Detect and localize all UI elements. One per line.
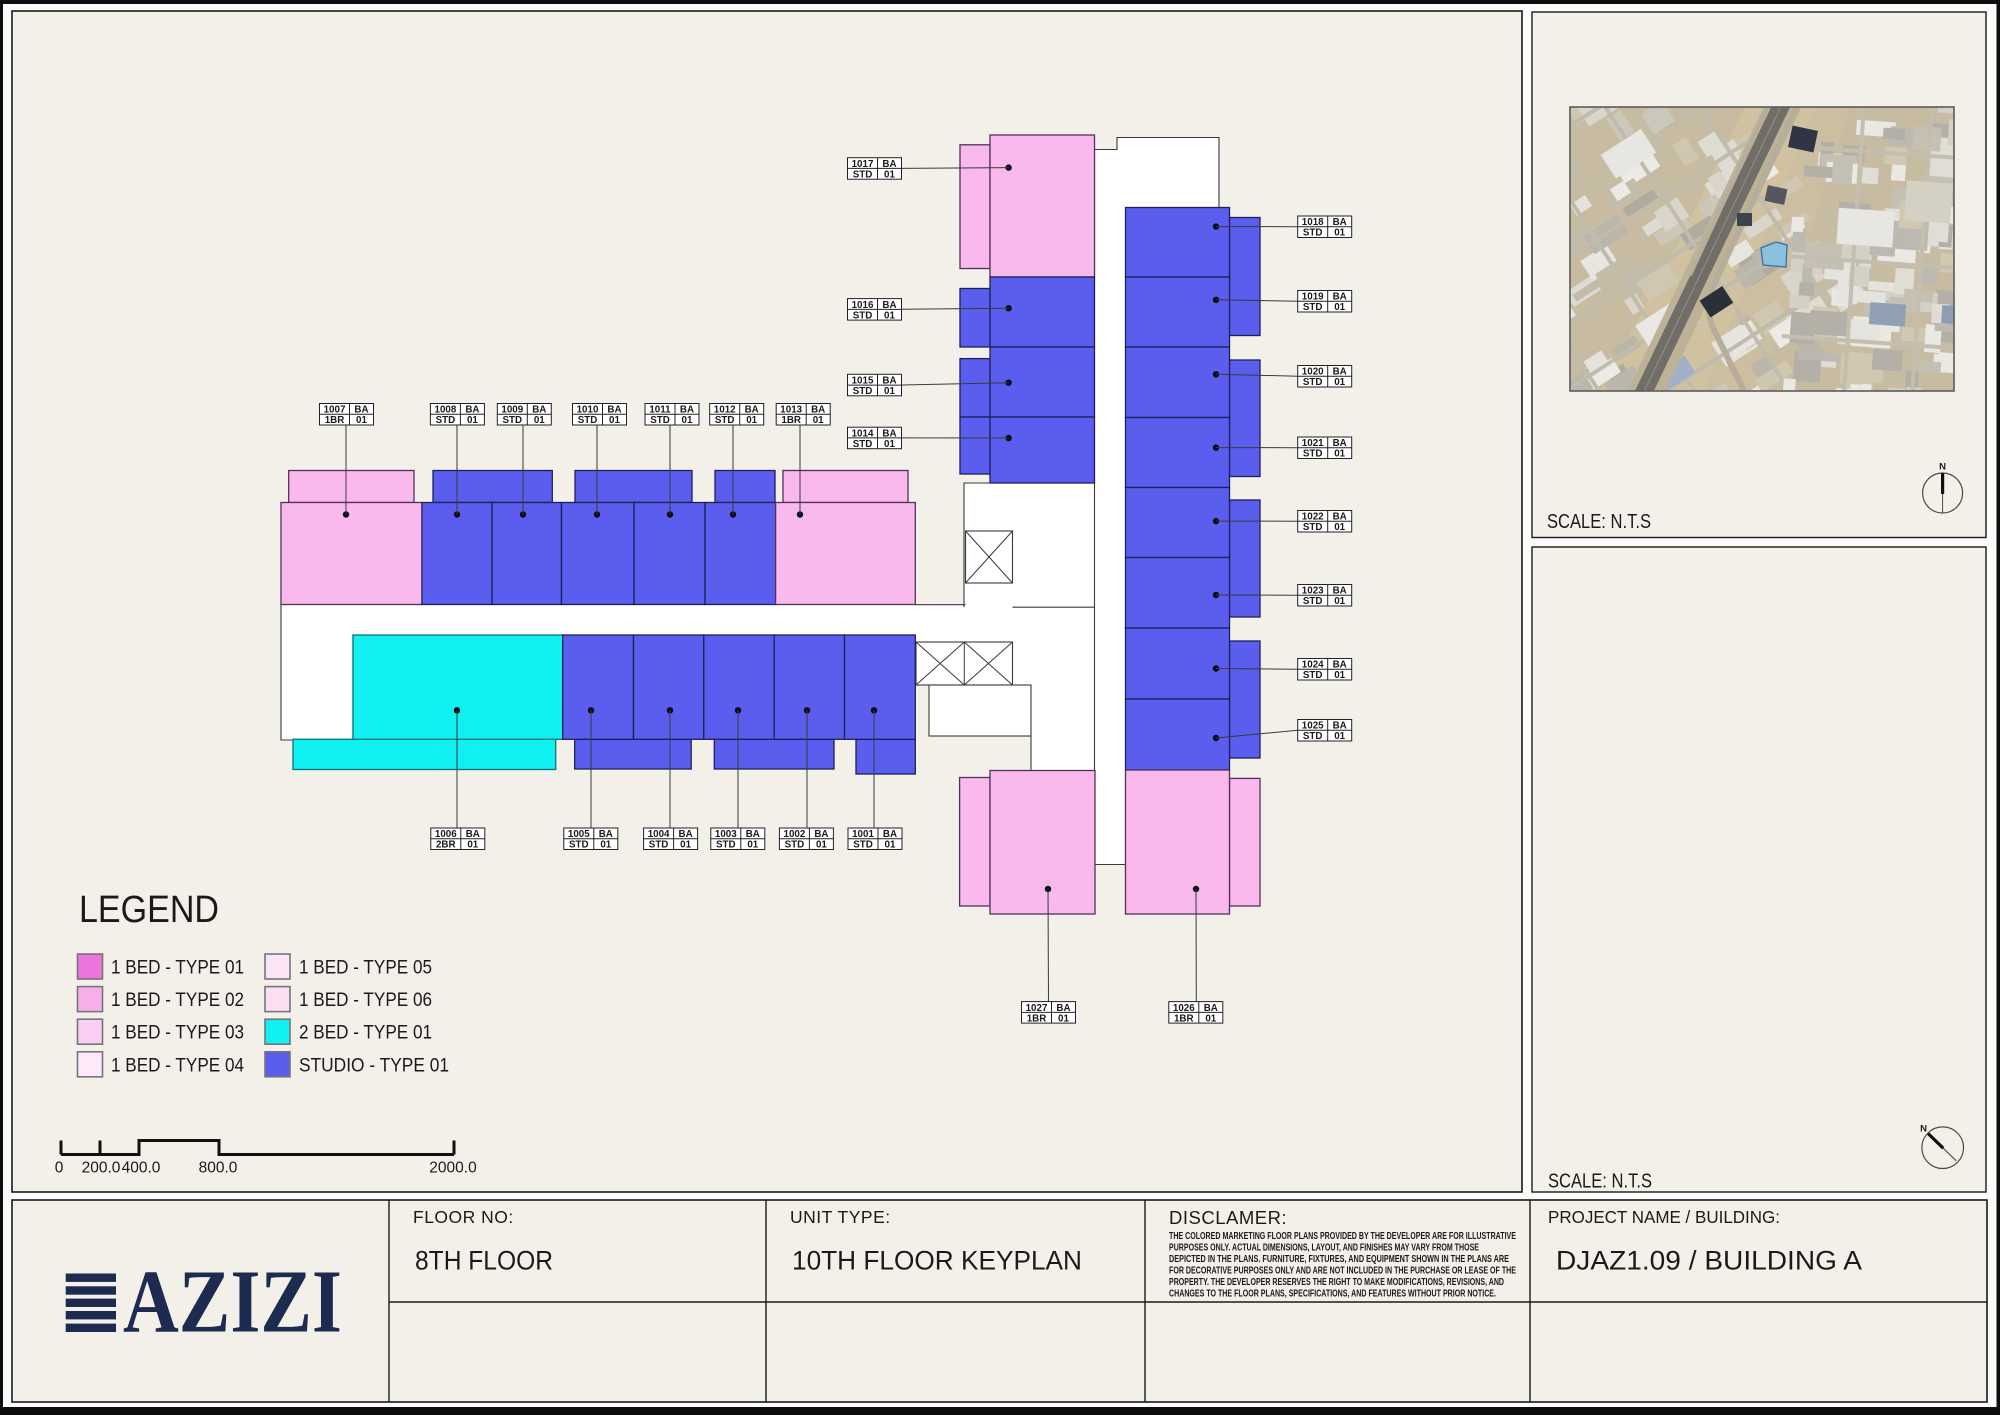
- svg-text:FOR DECORATIVE PURPOSES ONLY A: FOR DECORATIVE PURPOSES ONLY AND ARE NOT…: [1169, 1266, 1516, 1277]
- svg-text:1 BED - TYPE 04: 1 BED - TYPE 04: [111, 1054, 244, 1076]
- svg-text:SCALE: N.T.S: SCALE: N.T.S: [1547, 510, 1651, 533]
- svg-text:1016: 1016: [852, 300, 874, 311]
- svg-text:BA: BA: [1333, 438, 1347, 449]
- svg-text:STD: STD: [569, 840, 589, 851]
- svg-text:1004: 1004: [648, 829, 670, 840]
- svg-text:STD: STD: [853, 310, 873, 321]
- svg-text:01: 01: [884, 169, 895, 180]
- svg-text:SCALE: N.T.S: SCALE: N.T.S: [1548, 1170, 1652, 1193]
- svg-text:01: 01: [1334, 522, 1345, 533]
- svg-text:1008: 1008: [435, 405, 457, 416]
- svg-text:STUDIO - TYPE 01: STUDIO - TYPE 01: [299, 1054, 449, 1076]
- svg-text:1021: 1021: [1302, 438, 1324, 449]
- svg-text:1014: 1014: [852, 428, 874, 439]
- svg-text:800.0: 800.0: [199, 1160, 238, 1177]
- svg-text:01: 01: [1334, 377, 1345, 388]
- svg-text:BA: BA: [745, 405, 759, 416]
- svg-text:DJAZ1.09 / BUILDING A: DJAZ1.09 / BUILDING A: [1556, 1246, 1862, 1276]
- svg-text:01: 01: [747, 840, 758, 851]
- svg-text:1025: 1025: [1302, 721, 1324, 732]
- svg-text:01: 01: [1334, 596, 1345, 607]
- svg-text:AZIZI: AZIZI: [123, 1253, 342, 1352]
- svg-text:1BR: 1BR: [781, 415, 801, 426]
- svg-text:BA: BA: [1333, 217, 1347, 228]
- svg-text:LEGEND: LEGEND: [79, 889, 219, 931]
- svg-text:1026: 1026: [1173, 1003, 1195, 1014]
- svg-text:BA: BA: [465, 405, 479, 416]
- svg-text:BA: BA: [680, 405, 694, 416]
- svg-text:01: 01: [356, 415, 367, 426]
- svg-text:1005: 1005: [568, 829, 590, 840]
- svg-text:01: 01: [467, 415, 478, 426]
- svg-text:01: 01: [885, 840, 896, 851]
- svg-text:PROPERTY. THE DEVELOPER RESERV: PROPERTY. THE DEVELOPER RESERVES THE RIG…: [1169, 1277, 1504, 1288]
- svg-text:BA: BA: [599, 829, 613, 840]
- svg-text:01: 01: [680, 840, 691, 851]
- svg-text:BA: BA: [1333, 367, 1347, 378]
- svg-text:STD: STD: [853, 840, 873, 851]
- svg-text:1001: 1001: [852, 829, 874, 840]
- svg-text:01: 01: [467, 840, 478, 851]
- svg-text:1011: 1011: [649, 405, 671, 416]
- svg-text:PROJECT NAME / BUILDING:: PROJECT NAME / BUILDING:: [1548, 1207, 1780, 1227]
- svg-text:STD: STD: [1303, 731, 1323, 742]
- svg-text:BA: BA: [1333, 586, 1347, 597]
- svg-text:STD: STD: [1303, 522, 1323, 533]
- svg-text:THE COLORED MARKETING FLOOR PL: THE COLORED MARKETING FLOOR PLANS PROVID…: [1169, 1231, 1516, 1242]
- svg-text:BA: BA: [882, 428, 896, 439]
- svg-text:1007: 1007: [324, 405, 346, 416]
- svg-text:STD: STD: [649, 840, 669, 851]
- svg-text:PURPOSES ONLY. ACTUAL DIMENSIO: PURPOSES ONLY. ACTUAL DIMENSIONS, LAYOUT…: [1169, 1243, 1479, 1254]
- svg-text:10TH FLOOR KEYPLAN: 10TH FLOOR KEYPLAN: [792, 1246, 1082, 1276]
- svg-text:STD: STD: [1303, 302, 1323, 313]
- svg-text:1BR: 1BR: [1174, 1013, 1194, 1024]
- svg-text:01: 01: [1334, 670, 1345, 681]
- svg-text:1 BED - TYPE 05: 1 BED - TYPE 05: [299, 957, 432, 979]
- svg-text:BA: BA: [532, 405, 546, 416]
- svg-text:01: 01: [884, 386, 895, 397]
- svg-text:DEPICTED IN THE PLANS. FURNITU: DEPICTED IN THE PLANS. FURNITURE, FIXTUR…: [1169, 1254, 1509, 1265]
- svg-text:1009: 1009: [501, 405, 523, 416]
- svg-text:STD: STD: [1303, 596, 1323, 607]
- svg-text:STD: STD: [1303, 449, 1323, 460]
- svg-text:1012: 1012: [714, 405, 736, 416]
- svg-text:1006: 1006: [435, 829, 457, 840]
- svg-text:1BR: 1BR: [325, 415, 345, 426]
- svg-text:01: 01: [1334, 449, 1345, 460]
- svg-text:BA: BA: [607, 405, 621, 416]
- svg-text:1017: 1017: [852, 159, 874, 170]
- svg-text:BA: BA: [882, 159, 896, 170]
- svg-text:01: 01: [682, 415, 693, 426]
- svg-text:1 BED - TYPE 01: 1 BED - TYPE 01: [111, 957, 244, 979]
- svg-text:STD: STD: [1303, 670, 1323, 681]
- svg-text:DISCLAMER:: DISCLAMER:: [1169, 1207, 1287, 1228]
- svg-text:1019: 1019: [1302, 292, 1324, 303]
- svg-text:01: 01: [600, 840, 611, 851]
- svg-text:BA: BA: [814, 829, 828, 840]
- svg-text:STD: STD: [1303, 377, 1323, 388]
- svg-text:01: 01: [609, 415, 620, 426]
- svg-text:01: 01: [816, 840, 827, 851]
- svg-text:N: N: [1939, 462, 1946, 473]
- svg-text:STD: STD: [853, 439, 873, 450]
- svg-text:01: 01: [884, 310, 895, 321]
- svg-text:01: 01: [534, 415, 545, 426]
- svg-text:1023: 1023: [1302, 586, 1324, 597]
- svg-text:BA: BA: [882, 300, 896, 311]
- svg-text:1010: 1010: [577, 405, 599, 416]
- svg-text:1 BED - TYPE 02: 1 BED - TYPE 02: [111, 989, 244, 1011]
- svg-text:STD: STD: [853, 386, 873, 397]
- svg-text:400.0: 400.0: [122, 1160, 161, 1177]
- svg-text:STD: STD: [853, 169, 873, 180]
- svg-text:01: 01: [813, 415, 824, 426]
- svg-text:1020: 1020: [1302, 367, 1324, 378]
- svg-text:STD: STD: [716, 840, 736, 851]
- svg-text:STD: STD: [436, 415, 456, 426]
- svg-text:0: 0: [55, 1160, 64, 1177]
- svg-text:STD: STD: [650, 415, 670, 426]
- svg-text:01: 01: [1334, 731, 1345, 742]
- svg-text:BA: BA: [1333, 512, 1347, 523]
- svg-text:1022: 1022: [1302, 512, 1324, 523]
- svg-text:8TH FLOOR: 8TH FLOOR: [415, 1246, 553, 1276]
- svg-text:N: N: [1920, 1124, 1927, 1135]
- svg-text:01: 01: [746, 415, 757, 426]
- svg-text:BA: BA: [746, 829, 760, 840]
- svg-text:01: 01: [1058, 1013, 1069, 1024]
- svg-text:1BR: 1BR: [1027, 1013, 1047, 1024]
- svg-text:01: 01: [884, 439, 895, 450]
- svg-text:200.0: 200.0: [82, 1160, 121, 1177]
- svg-text:1002: 1002: [784, 829, 806, 840]
- svg-text:BA: BA: [1333, 721, 1347, 732]
- svg-text:BA: BA: [811, 405, 825, 416]
- svg-text:STD: STD: [1303, 228, 1323, 239]
- svg-text:1024: 1024: [1302, 660, 1324, 671]
- svg-text:BA: BA: [883, 829, 897, 840]
- svg-text:BA: BA: [1204, 1003, 1218, 1014]
- svg-text:BA: BA: [466, 829, 480, 840]
- svg-text:BA: BA: [1056, 1003, 1070, 1014]
- svg-text:1 BED - TYPE 06: 1 BED - TYPE 06: [299, 989, 432, 1011]
- svg-text:BA: BA: [1333, 660, 1347, 671]
- svg-text:STD: STD: [578, 415, 598, 426]
- svg-text:STD: STD: [502, 415, 522, 426]
- svg-text:BA: BA: [1333, 292, 1347, 303]
- svg-text:CHANGES TO THE FLOOR PLANS, SP: CHANGES TO THE FLOOR PLANS, SPECIFICATIO…: [1169, 1289, 1496, 1300]
- svg-text:1 BED - TYPE 03: 1 BED - TYPE 03: [111, 1022, 244, 1044]
- svg-text:1013: 1013: [780, 405, 802, 416]
- svg-text:STD: STD: [715, 415, 735, 426]
- svg-text:UNIT TYPE:: UNIT TYPE:: [790, 1207, 891, 1227]
- svg-text:01: 01: [1205, 1013, 1216, 1024]
- svg-text:01: 01: [1334, 302, 1345, 313]
- svg-text:BA: BA: [679, 829, 693, 840]
- svg-text:BA: BA: [354, 405, 368, 416]
- svg-text:2BR: 2BR: [436, 840, 456, 851]
- svg-text:STD: STD: [785, 840, 805, 851]
- svg-text:1015: 1015: [852, 376, 874, 387]
- svg-text:2000.0: 2000.0: [429, 1160, 477, 1177]
- svg-text:FLOOR NO:: FLOOR NO:: [413, 1207, 514, 1227]
- svg-text:1003: 1003: [715, 829, 737, 840]
- svg-text:1027: 1027: [1026, 1003, 1048, 1014]
- svg-text:BA: BA: [882, 376, 896, 387]
- svg-text:01: 01: [1334, 228, 1345, 239]
- svg-text:2 BED - TYPE 01: 2 BED - TYPE 01: [299, 1022, 432, 1044]
- svg-text:1018: 1018: [1302, 217, 1324, 228]
